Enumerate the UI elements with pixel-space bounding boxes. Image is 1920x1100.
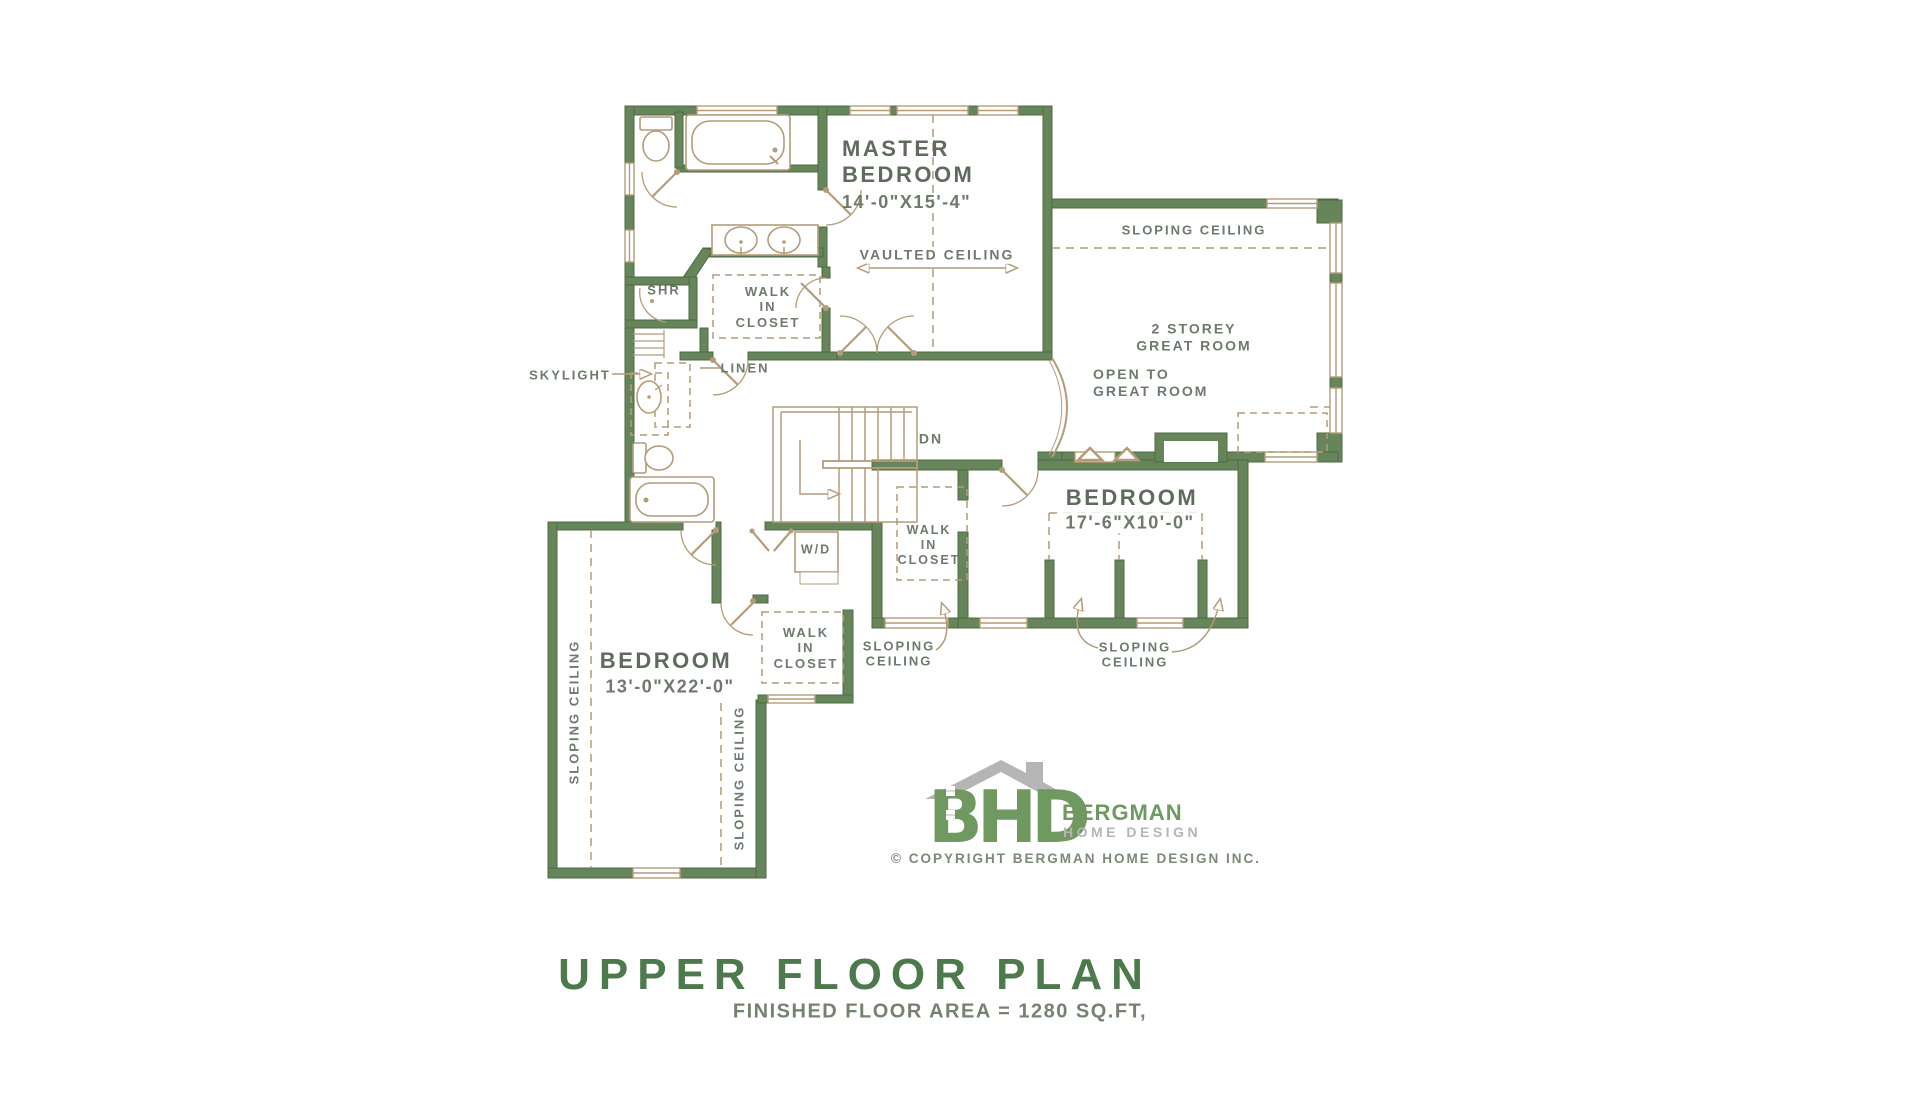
label-open-to-great-room: OPEN TO GREAT ROOM [1093,366,1208,399]
master-bath-door [642,172,677,207]
open-to-line1: OPEN TO [1093,366,1208,383]
bedroom3-door [681,530,716,565]
great-room-nook-outline [1238,413,1327,452]
open-arch [1049,358,1067,457]
vanity-double-sinks [712,225,818,255]
label-walk-in-closet-3: WALK IN CLOSET [774,625,839,671]
master-name-line1: MASTER [842,136,974,162]
floor-plan-canvas: BHD MASTER BEDROOM 14'-0"X15'-4" VAULTED… [0,0,1920,1100]
washer-dryer-box [795,532,838,584]
label-2-storey-great-room: 2 STOREY GREAT ROOM [1136,320,1251,353]
great-room-line1: 2 STOREY [1136,320,1251,337]
french-doors-master [840,316,914,353]
plan-subtitle: FINISHED FLOOR AREA = 1280 SQ.FT, [733,1001,1147,1024]
toilet-master [640,117,672,161]
shower-drain [650,299,654,303]
bathtub-hall [630,477,714,522]
master-closet-door [796,278,826,308]
label-linen: LINEN [721,360,770,375]
bedroom2-door [1002,470,1038,506]
wd-bifold-doors [752,531,791,551]
plan-title: UPPER FLOOR PLAN [558,950,1152,1000]
label-sloping-ceiling-vertical-left: SLOPING CEILING [567,640,582,785]
stair-direction-arrow [800,440,838,494]
fixtures [630,115,838,584]
bathtub-master [686,115,790,170]
sink-hall-bath [637,381,662,413]
label-sloping-ceiling-closet: SLOPING CEILING [863,639,936,670]
doors [640,169,1038,635]
label-walk-in-closet-2: WALK IN CLOSET [898,523,961,567]
label-walk-in-closet-master: WALK IN CLOSET [736,284,801,330]
label-shr: SHR [647,282,680,297]
brand-name: BERGMAN [1062,800,1183,826]
label-sloping-ceiling-great-room: SLOPING CEILING [1122,222,1267,237]
label-bedroom2: BEDROOM [1066,485,1198,511]
master-name-line2: BEDROOM [842,162,974,188]
label-dn: DN [919,431,943,448]
window-bedroom3 [633,695,815,878]
label-vaulted-ceiling: VAULTED CEILING [857,247,1018,264]
label-bedroom2-dims: 17'-6"X10'-0" [1062,512,1197,533]
label-bedroom3-dims: 13'-0"X22'-0" [605,676,734,697]
linen-shelves [633,330,664,358]
label-sloping-ceiling-bedroom2: SLOPING CEILING [1099,640,1172,671]
toilet-hall-bath [633,443,673,473]
great-room-line2: GREAT ROOM [1136,337,1251,354]
master-dims: 14'-0"X15'-4" [842,192,974,213]
label-skylight: SKYLIGHT [529,367,611,382]
open-to-line2: GREAT ROOM [1093,383,1208,400]
copyright-line: © COPYRIGHT BERGMAN HOME DESIGN INC. [891,851,1261,866]
label-wd: W/D [801,543,831,558]
closet3-door [721,603,753,635]
label-master-bedroom: MASTER BEDROOM 14'-0"X15'-4" [842,136,974,213]
fireplace [1155,433,1227,462]
label-bedroom3: BEDROOM [600,648,732,674]
label-sloping-ceiling-vertical-right: SLOPING CEILING [732,706,747,851]
brand-subtitle: HOME DESIGN [1063,824,1201,840]
